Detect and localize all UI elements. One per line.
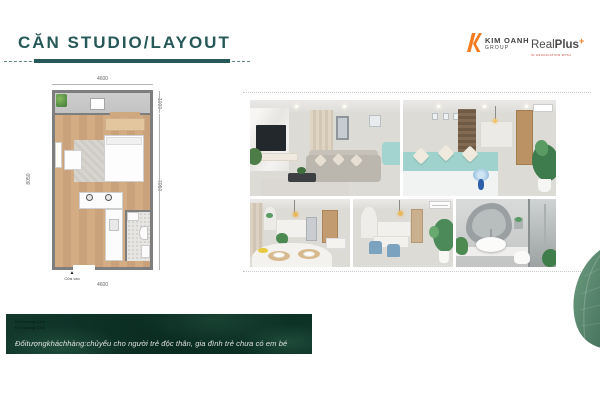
entrance-label: Cửa vào [52, 276, 92, 281]
ceiling [250, 199, 350, 209]
dimension-line [159, 114, 160, 270]
plant-pot [439, 251, 449, 263]
round-sink [476, 237, 506, 252]
bed-corner [382, 142, 400, 165]
kitchen-counter [480, 121, 514, 148]
toilet [139, 226, 148, 240]
dimension-bottom: 4600 [52, 282, 153, 288]
pendant-bulb-icon [398, 211, 403, 216]
mirror-reflection [472, 209, 506, 239]
tv [256, 125, 286, 151]
arched-niche [361, 207, 377, 238]
ac-unit [429, 201, 451, 209]
photo-bathroom [456, 199, 556, 267]
plate [273, 252, 285, 258]
wall-art [369, 115, 381, 127]
dimension-left: 8050 [26, 164, 32, 194]
floorplan-drawing [52, 90, 153, 270]
blue-chair [387, 244, 400, 257]
kitchen-counter-vertical [105, 209, 123, 261]
vase [478, 179, 484, 191]
stove-burner-icon [86, 194, 93, 201]
bathroom-vanity [127, 212, 139, 221]
photo-bedroom-kitchen [403, 100, 556, 196]
dimension-line [52, 84, 153, 85]
realplus-plus: Plus [555, 39, 579, 51]
realplus-plus-icon: + [579, 36, 584, 46]
page-title: CĂN STUDIO/LAYOUT [18, 33, 231, 53]
photo-kitchen-dining [250, 199, 350, 267]
ceiling-light-icon [483, 105, 486, 108]
photo-dining-area [353, 199, 453, 267]
photo-grid [250, 100, 556, 267]
toilet [514, 251, 530, 265]
kim-oanh-sub: GROUP [485, 46, 529, 51]
note-banner: Đối tượng Chủ Đối tượng Chủ Đốitượngkhác… [6, 314, 312, 354]
ceiling-light-icon [343, 105, 346, 108]
plant-pot [538, 179, 552, 192]
balcony-ac-unit [90, 98, 105, 110]
floorplan: 4600 8050 1000 7050 4600 ▲ Cửa vào [28, 76, 190, 292]
kim-oanh-k-icon [467, 33, 482, 52]
realplus-logo: RealPlus+ IN ASSOCIATION WITH [531, 36, 584, 57]
banner-micro-line-2: Đối tượng Chủ [15, 325, 45, 331]
kitchen-cabinets [377, 221, 411, 237]
pendant-light [399, 200, 400, 211]
sideboard [326, 238, 346, 249]
plant-leaf [535, 140, 549, 155]
title-accent-bar [34, 59, 230, 63]
dimension-line [159, 91, 160, 113]
dimension-top: 4600 [52, 76, 153, 82]
entrance-opening [73, 265, 95, 270]
kitchen-counter [79, 192, 123, 209]
balcony-door-opening [110, 112, 140, 117]
pendant-light [294, 200, 295, 212]
kitchen-sink [109, 219, 119, 231]
balcony-plant-icon [56, 94, 67, 107]
ceiling-light-icon [437, 105, 440, 108]
leaf-decoration-icon [561, 246, 600, 350]
wall-cabinet [55, 142, 62, 168]
photo-living-room [250, 100, 400, 196]
wardrobe [105, 118, 145, 131]
shower [141, 245, 150, 258]
fridge [306, 217, 317, 241]
pendant-bulb-icon [293, 212, 298, 217]
plate [303, 251, 315, 257]
wall-frame [443, 113, 449, 120]
door [411, 209, 423, 243]
plant [456, 237, 468, 255]
wall-frame [432, 113, 438, 120]
shelf-plant [266, 213, 273, 218]
arched-shelf [264, 207, 276, 230]
ceiling-light-icon [295, 105, 298, 108]
dotted-guide-line [243, 92, 591, 93]
kim-oanh-name: KIM OANH [485, 37, 529, 45]
banner-text: Đốitượngkháchhàng:chủyếu cho người trẻ đ… [15, 339, 287, 348]
stove-burner-icon [105, 194, 112, 201]
niche-plant [515, 217, 522, 222]
blue-chair [369, 241, 382, 254]
shower-bar [544, 204, 546, 245]
plant [542, 249, 556, 267]
pendant-light [495, 106, 496, 119]
ac-unit [533, 104, 553, 113]
realplus-real: Real [531, 39, 555, 51]
table-plant [297, 167, 306, 174]
dining-table [252, 243, 332, 267]
realplus-tagline: IN ASSOCIATION WITH [531, 54, 584, 57]
side-table [64, 150, 82, 170]
slide: CĂN STUDIO/LAYOUT KIM OANH GROUP RealPlu… [0, 0, 600, 400]
entry-door [516, 110, 533, 166]
coffee-table [288, 173, 317, 182]
dotted-guide-line [243, 271, 591, 272]
kim-oanh-logo: KIM OANH GROUP [467, 33, 529, 52]
bed-pillow [106, 137, 142, 145]
window [336, 116, 350, 140]
